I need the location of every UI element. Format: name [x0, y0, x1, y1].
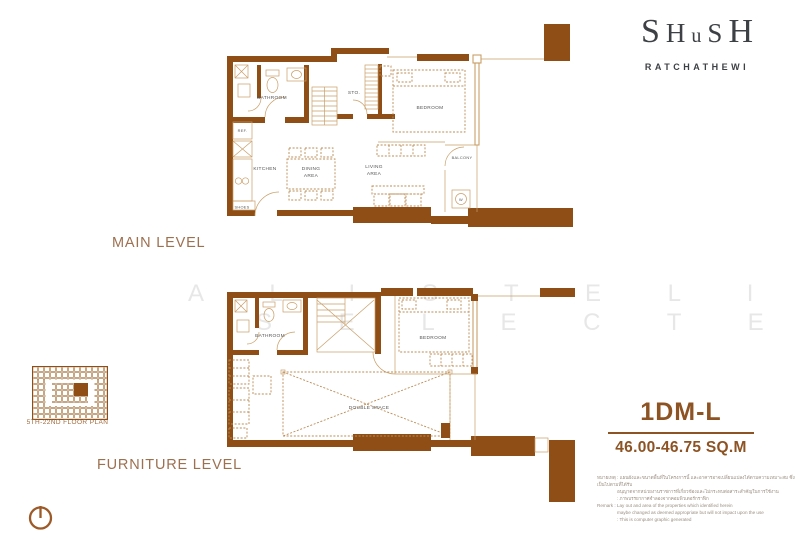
- main-upper-stair-strip: [365, 65, 378, 109]
- disclaimer-en-line-3: : This is computer graphic generated: [597, 516, 795, 523]
- furniture-stairwell: [317, 298, 375, 352]
- main-washer-label: W: [459, 197, 463, 202]
- disclaimer-thai-line-3: : ภาพบรรยากาศจำลองจากคอมพิวเตอร์กราฟิก: [597, 495, 795, 502]
- disclaimer-en-line-2: maybe changed as deemed appropriate but …: [597, 509, 795, 516]
- brand-logo: SHuSH RATCHATHEWI: [612, 12, 782, 72]
- main-level-title: MAIN LEVEL: [112, 235, 205, 251]
- unit-info: 1DM-L 46.00-46.75 SQ.M: [608, 398, 754, 457]
- disclaimer-thai-line-2: อนุญาตจากหน่วยงานราชการที่เกี่ยวข้องและไ…: [597, 488, 795, 495]
- north-compass-icon: [27, 501, 55, 535]
- main-kitchen-label: KITCHEN: [253, 166, 276, 172]
- furniture-bathroom-fixtures: [235, 300, 301, 350]
- floor-plan-sheet: A L I S T E L I T E S E L E C T E D SHuS…: [0, 0, 800, 535]
- key-plan-drawing: [32, 366, 108, 420]
- key-plan-highlighted-unit: [74, 383, 88, 396]
- key-plan: [32, 366, 108, 425]
- main-bathroom-label: BATHROOM: [257, 95, 287, 101]
- unit-area: 46.00-46.75 SQ.M: [608, 439, 754, 457]
- main-storage-label: STO.: [348, 90, 360, 96]
- main-dining-label-2: AREA: [304, 173, 319, 179]
- double-space-void: [281, 370, 452, 436]
- furniture-bedroom-furniture: [395, 294, 478, 374]
- furniture-level-plan: BATHROOM BEDROOM DOUBLE SPACE: [227, 288, 577, 508]
- disclaimer: หมายเหตุ : แผนผังและขนาดพื้นที่ในโครงการ…: [597, 474, 795, 523]
- main-level-plan: BATHROOM STO. BEDROOM BALCONY W REF. KIT…: [227, 24, 573, 233]
- main-living-label-1: LIVING: [365, 164, 383, 170]
- disclaimer-thai-line-1: หมายเหตุ : แผนผังและขนาดพื้นที่ในโครงการ…: [597, 474, 795, 488]
- main-stairs: [312, 87, 337, 125]
- key-plan-caption: 5TH-22ND FLOOR PLAN: [10, 419, 125, 426]
- furniture-kitchen-dashed: [229, 360, 271, 438]
- main-shoes-label: SHOES: [234, 205, 249, 210]
- furniture-bathroom-label: BATHROOM: [255, 333, 285, 339]
- unit-code: 1DM-L: [608, 398, 754, 434]
- main-level-drawing: BATHROOM STO. BEDROOM BALCONY W REF. KIT…: [227, 24, 573, 228]
- main-fridge-label: REF.: [238, 128, 248, 133]
- main-dining-label-1: DINING: [302, 166, 321, 172]
- main-bathroom-fixtures: [235, 65, 306, 117]
- furniture-void-strip: [441, 374, 475, 440]
- main-living-label-2: AREA: [367, 171, 382, 177]
- furniture-level-drawing: BATHROOM BEDROOM DOUBLE SPACE: [227, 288, 577, 503]
- main-bedroom-furniture: [378, 63, 479, 145]
- furniture-level-title: FURNITURE LEVEL: [97, 457, 242, 473]
- brand-location: RATCHATHEWI: [612, 62, 782, 72]
- disclaimer-en-line-1: Remark : Lay out and area of the propert…: [597, 502, 795, 509]
- main-balcony-label: BALCONY: [452, 155, 473, 160]
- double-space-label: DOUBLE SPACE: [349, 405, 390, 411]
- main-bedroom-label: BEDROOM: [417, 105, 444, 111]
- furniture-bedroom-label: BEDROOM: [420, 335, 447, 341]
- brand-name: SHuSH: [612, 12, 782, 58]
